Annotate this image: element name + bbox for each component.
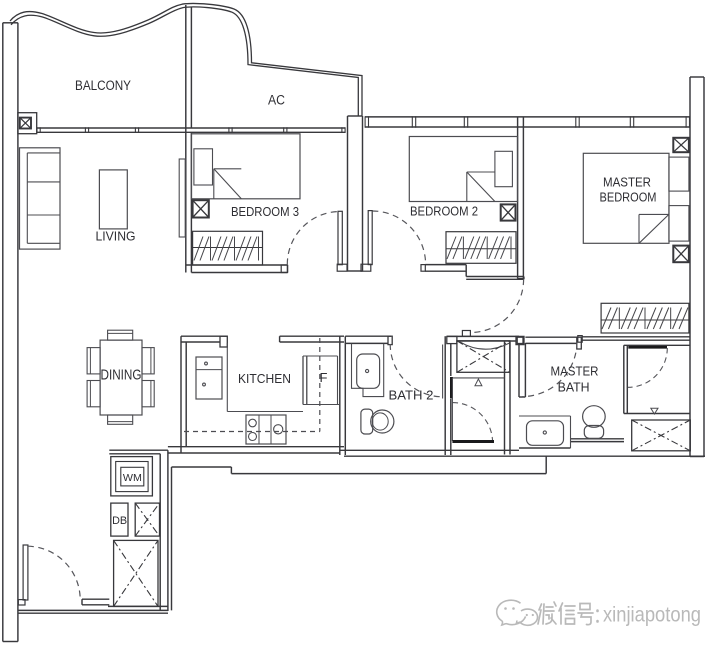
svg-text:BEDROOM 2: BEDROOM 2 — [410, 204, 478, 219]
svg-text:BEDROOM: BEDROOM — [600, 190, 657, 205]
svg-text:WM: WM — [123, 472, 142, 484]
svg-text:xinjiapotong: xinjiapotong — [603, 604, 701, 627]
svg-text:F: F — [320, 370, 328, 385]
svg-text:MASTER: MASTER — [551, 364, 599, 379]
svg-text:DINING: DINING — [101, 368, 142, 384]
svg-text:DB: DB — [112, 515, 127, 527]
svg-text:MASTER: MASTER — [603, 175, 651, 190]
svg-text:LIVING: LIVING — [96, 229, 136, 244]
svg-text:AC: AC — [268, 93, 285, 108]
svg-text:BEDROOM 3: BEDROOM 3 — [231, 204, 299, 219]
svg-text:BATH: BATH — [558, 380, 590, 395]
svg-text:BATH 2: BATH 2 — [389, 388, 434, 403]
svg-text:BALCONY: BALCONY — [75, 78, 131, 93]
svg-text:KITCHEN: KITCHEN — [238, 371, 291, 386]
